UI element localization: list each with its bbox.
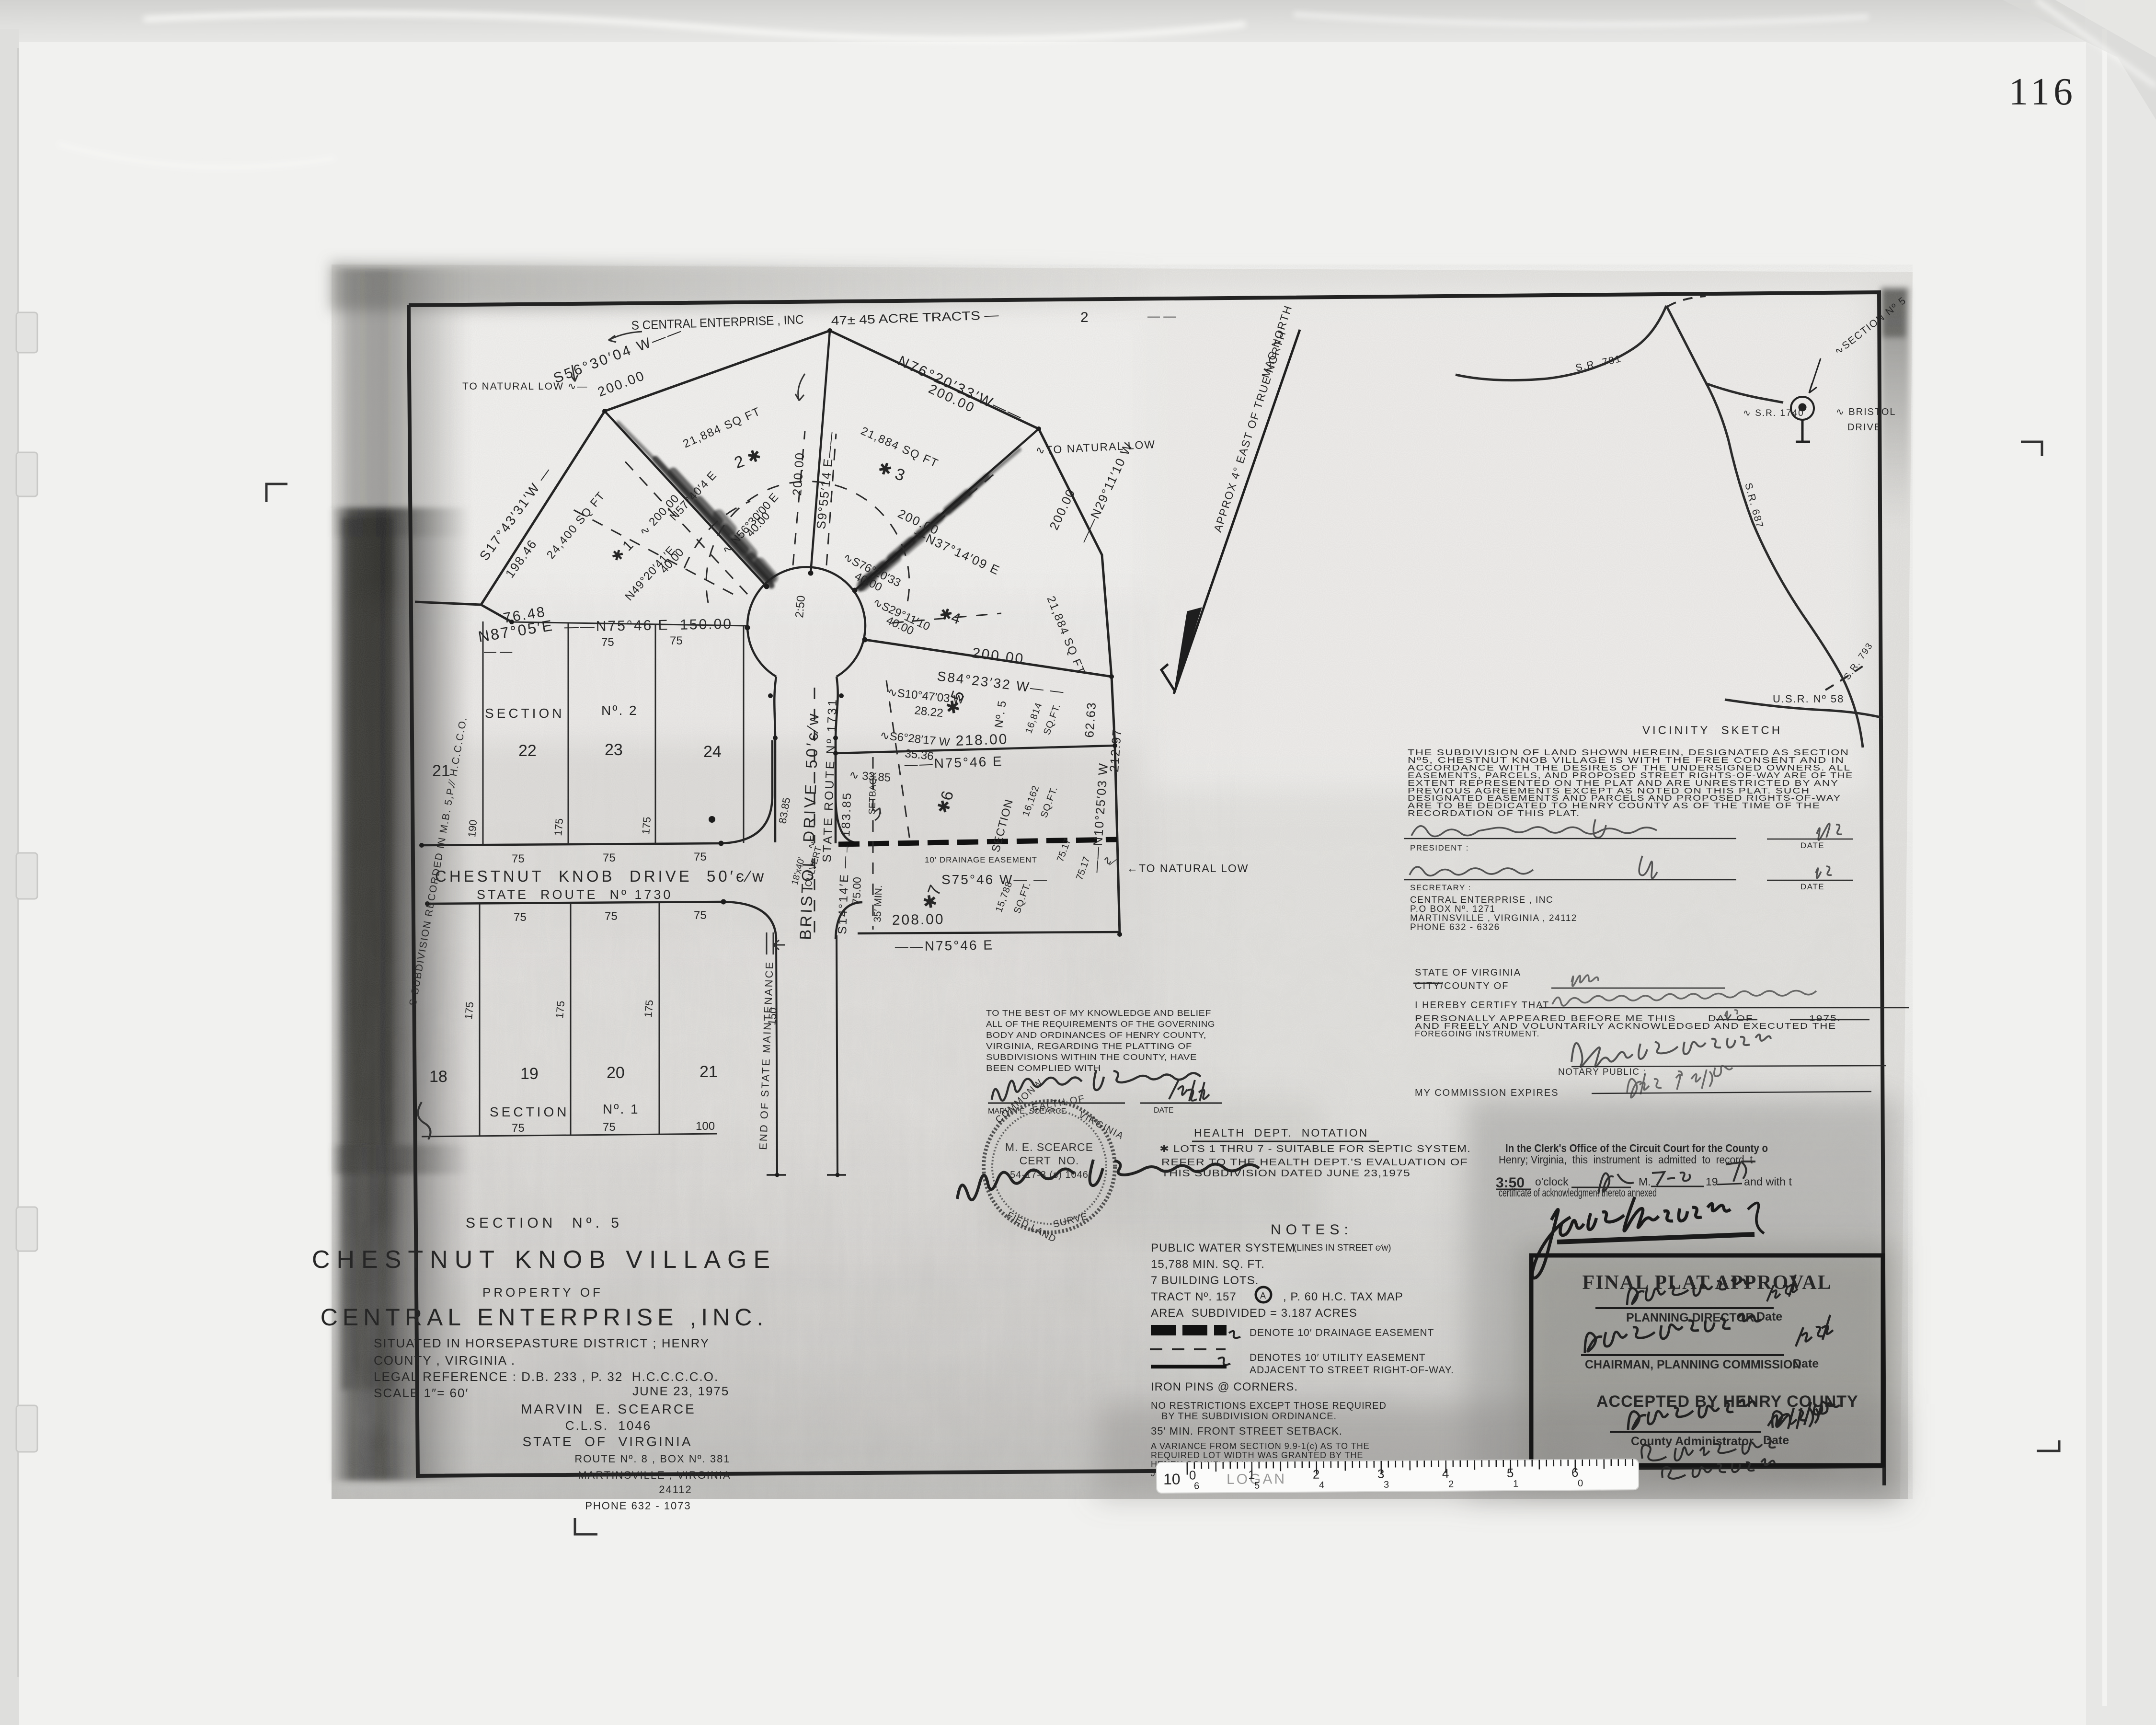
- svg-text:175: 175: [640, 816, 653, 835]
- svg-text:4: 4: [1442, 1466, 1449, 1481]
- svg-text:NOTES:: NOTES:: [1271, 1222, 1353, 1238]
- svg-text:Nº. 1: Nº. 1: [603, 1102, 640, 1116]
- svg-text:∿ S.R. 1740: ∿ S.R. 1740: [1743, 408, 1804, 418]
- svg-text:SETBACK: SETBACK: [867, 771, 879, 815]
- svg-text:19: 19: [1706, 1175, 1718, 1188]
- svg-text:— ―: — ―: [484, 644, 512, 658]
- svg-text:21: 21: [700, 1063, 718, 1081]
- svg-text:DATE: DATE: [1154, 1106, 1173, 1115]
- svg-text:CENTRAL ENTERPRISE ,INC.: CENTRAL ENTERPRISE ,INC.: [321, 1304, 768, 1331]
- svg-text:7 BUILDING LOTS.: 7 BUILDING LOTS.: [1151, 1274, 1259, 1287]
- svg-text:— —: — —: [1147, 309, 1176, 323]
- svg-text:190: 190: [466, 819, 479, 838]
- svg-text:175: 175: [553, 1000, 567, 1019]
- svg-text:10′ DRAINAGE EASEMENT: 10′ DRAINAGE EASEMENT: [925, 855, 1037, 864]
- svg-text:175: 175: [462, 1001, 476, 1020]
- svg-text:DRIVE: DRIVE: [1847, 422, 1881, 433]
- svg-text:REFER TO THE HEALTH DEPT.'S EV: REFER TO THE HEALTH DEPT.'S EVALUATION O…: [1161, 1157, 1468, 1168]
- svg-text:3: 3: [1377, 1467, 1385, 1481]
- svg-text:←TO NATURAL LOW: ←TO NATURAL LOW: [1127, 862, 1249, 874]
- svg-text:CENTRAL ENTERPRISE , INC: CENTRAL ENTERPRISE , INC: [1410, 895, 1553, 905]
- svg-text:75.00: 75.00: [850, 877, 863, 905]
- svg-text:ADJACENT TO STREET RIGHT-OF-WA: ADJACENT TO STREET RIGHT-OF-WAY.: [1250, 1365, 1454, 1376]
- svg-text:75: 75: [603, 1121, 616, 1134]
- svg-text:C.L.S. 1046: C.L.S. 1046: [565, 1418, 652, 1433]
- svg-text:2:50: 2:50: [793, 595, 808, 619]
- svg-text:THIS SUBDIVISION DATED JUNE 23: THIS SUBDIVISION DATED JUNE 23,1975: [1161, 1168, 1411, 1179]
- svg-text:175: 175: [552, 818, 565, 837]
- svg-text:35′ MIN. FRONT STREET SETBACK.: 35′ MIN. FRONT STREET SETBACK.: [1151, 1425, 1342, 1437]
- svg-text:DATE: DATE: [1800, 841, 1824, 850]
- svg-text:75: 75: [514, 911, 527, 924]
- svg-text:18: 18: [429, 1068, 447, 1086]
- svg-text:and with t: and with t: [1744, 1175, 1792, 1188]
- svg-text:STATE OF VIRGINIA: STATE OF VIRGINIA: [1415, 967, 1521, 978]
- svg-text:6: 6: [1194, 1481, 1199, 1491]
- svg-text:∿ BRISTOL: ∿ BRISTOL: [1836, 407, 1896, 417]
- svg-text:SITUATED IN HORSEPASTURE DISTR: SITUATED IN HORSEPASTURE DISTRICT ; HENR…: [374, 1336, 710, 1350]
- svg-text:0: 0: [1189, 1468, 1196, 1482]
- svg-text:116: 116: [2009, 71, 2076, 113]
- svg-text:CHESTNUT KNOB VILLAGE: CHESTNUT KNOB VILLAGE: [312, 1246, 777, 1274]
- svg-text:1: 1: [1513, 1479, 1518, 1489]
- svg-text:——N75°46 E 150.00: ——N75°46 E 150.00: [564, 616, 733, 635]
- svg-text:75: 75: [512, 1122, 525, 1135]
- svg-text:M. E. SCEARCE: M. E. SCEARCE: [1005, 1141, 1093, 1153]
- svg-text:Nº. 2: Nº. 2: [601, 703, 638, 718]
- svg-text:0: 0: [1578, 1478, 1583, 1489]
- svg-text:SECRETARY :: SECRETARY :: [1410, 883, 1471, 892]
- svg-text:BEEN COMPLIED WITH: BEEN COMPLIED WITH: [986, 1063, 1101, 1073]
- svg-text:Henry; Virginia, this instru: Henry; Virginia, this instrument is admi…: [1499, 1153, 1753, 1166]
- svg-text:ROUTE Nº. 8 , BOX Nº. 381: ROUTE Nº. 8 , BOX Nº. 381: [574, 1453, 730, 1465]
- svg-text:STATE OF VIRGINIA: STATE OF VIRGINIA: [523, 1434, 693, 1449]
- svg-text:100: 100: [696, 1120, 715, 1133]
- svg-text:SECTION: SECTION: [490, 1104, 569, 1119]
- svg-text:75: 75: [601, 636, 614, 649]
- svg-text:NO RESTRICTIONS EXCEPT THOSE R: NO RESTRICTIONS EXCEPT THOSE REQUIRED: [1151, 1401, 1387, 1411]
- svg-text:SECTION: SECTION: [485, 706, 564, 721]
- svg-text:3: 3: [1384, 1480, 1389, 1490]
- svg-text:PUBLIC WATER SYSTEM: PUBLIC WATER SYSTEM: [1151, 1242, 1296, 1254]
- svg-text:∿=: ∿=: [806, 835, 817, 849]
- svg-text:ALL OF THE REQUIREMENTS OF THE: ALL OF THE REQUIREMENTS OF THE GOVERNING: [986, 1019, 1215, 1029]
- svg-text:A: A: [1260, 1291, 1266, 1300]
- svg-text:BODY AND ORDINANCES OF HENRY C: BODY AND ORDINANCES OF HENRY COUNTY,: [986, 1030, 1206, 1040]
- svg-text:20: 20: [607, 1064, 625, 1082]
- svg-text:✱ LOTS 1 THRU 7 - SUITABLE FOR: ✱ LOTS 1 THRU 7 - SUITABLE FOR SEPTIC SY…: [1159, 1144, 1471, 1154]
- svg-text:P.O BOX Nº. 1271: P.O BOX Nº. 1271: [1410, 904, 1495, 914]
- svg-text:HEALTH DEPT. NOTATION: HEALTH DEPT. NOTATION: [1194, 1127, 1368, 1139]
- svg-text:208.00: 208.00: [892, 911, 945, 928]
- svg-text:CHAIRMAN, PLANNING COMMISSION: CHAIRMAN, PLANNING COMMISSION: [1585, 1358, 1801, 1371]
- svg-text:PHONE 632 - 6326: PHONE 632 - 6326: [1410, 922, 1500, 932]
- svg-text:JUNE 23, 1975: JUNE 23, 1975: [632, 1384, 729, 1398]
- svg-text:LOGAN: LOGAN: [1227, 1471, 1286, 1487]
- svg-text:DATE: DATE: [1800, 882, 1824, 891]
- svg-text:5: 5: [1507, 1466, 1514, 1480]
- svg-text:SUBDIVISIONS WITHIN THE COUNTY: SUBDIVISIONS WITHIN THE COUNTY, HAVE: [986, 1052, 1197, 1062]
- svg-text:SECTION Nº. 5: SECTION Nº. 5: [466, 1215, 623, 1231]
- svg-text:62.63: 62.63: [1082, 701, 1099, 738]
- svg-text:75: 75: [603, 851, 616, 864]
- svg-text:, P. 60 H.C. TAX MAP: , P. 60 H.C. TAX MAP: [1283, 1290, 1403, 1303]
- svg-text:75: 75: [694, 909, 707, 922]
- svg-text:CHESTNUT KNOB DRIVE 50′є⁄w: CHESTNUT KNOB DRIVE 50′є⁄w: [435, 867, 767, 885]
- svg-text:6: 6: [1571, 1465, 1579, 1480]
- svg-text:In the Clerk's Office of the C: In the Clerk's Office of the Circuit Cou…: [1505, 1142, 1768, 1154]
- svg-text:200.00: 200.00: [790, 451, 807, 496]
- svg-text:3:50: 3:50: [1496, 1175, 1525, 1191]
- svg-text:CERT NO.: CERT NO.: [1020, 1154, 1079, 1167]
- svg-text:BY THE SUBDIVISION ORDINANCE.: BY THE SUBDIVISION ORDINANCE.: [1161, 1411, 1337, 1422]
- svg-text:MARVIN E. SCEARCE: MARVIN E. SCEARCE: [521, 1402, 696, 1416]
- svg-text:U.S.R. Nº 58: U.S.R. Nº 58: [1773, 693, 1844, 705]
- svg-text:24: 24: [703, 743, 722, 761]
- svg-text:10: 10: [1163, 1471, 1181, 1488]
- svg-text:4: 4: [1319, 1480, 1324, 1491]
- svg-text:NOTARY PUBLIC :: NOTARY PUBLIC :: [1558, 1067, 1646, 1077]
- svg-text:PHONE 632 - 1073: PHONE 632 - 1073: [585, 1500, 691, 1512]
- svg-text:AREA SUBDIVIDED = 3.187 ACRES: AREA SUBDIVIDED = 3.187 ACRES: [1151, 1307, 1357, 1320]
- svg-text:COUNTY , VIRGINIA .: COUNTY , VIRGINIA .: [374, 1353, 516, 1368]
- svg-text:TRACT Nº. 157: TRACT Nº. 157: [1151, 1290, 1237, 1303]
- svg-text:2: 2: [1080, 310, 1089, 325]
- svg-text:15,788 MIN. SQ. FT.: 15,788 MIN. SQ. FT.: [1151, 1258, 1265, 1271]
- svg-text:PROPERTY OF: PROPERTY OF: [482, 1285, 603, 1299]
- svg-text:PRESIDENT :: PRESIDENT :: [1410, 843, 1469, 852]
- svg-text:Date: Date: [1793, 1357, 1819, 1370]
- svg-text:75: 75: [512, 852, 525, 865]
- svg-text:35′ MIN.: 35′ MIN.: [872, 885, 884, 922]
- svg-text:RECORDATION OF THIS PLAT.: RECORDATION OF THIS PLAT.: [1408, 808, 1580, 818]
- svg-text:22: 22: [518, 742, 537, 760]
- svg-text:MARTINSVILLE , VIRGINIA , 2411: MARTINSVILLE , VIRGINIA , 24112: [1410, 913, 1577, 923]
- svg-text:218.00: 218.00: [955, 731, 1009, 749]
- svg-text:SCALE 1″= 60′: SCALE 1″= 60′: [374, 1386, 469, 1400]
- svg-text:PLANNING DIRECTOR: PLANNING DIRECTOR: [1626, 1311, 1755, 1324]
- svg-text:I HEREBY CERTIFY THAT: I HEREBY CERTIFY THAT: [1415, 1000, 1549, 1011]
- svg-text:75: 75: [694, 851, 707, 863]
- svg-text:175: 175: [642, 1000, 655, 1018]
- svg-text:75: 75: [670, 634, 683, 647]
- svg-text:VICINITY SKETCH: VICINITY SKETCH: [1642, 724, 1782, 737]
- svg-text:DENOTES 10′ UTILITY EASEMENT: DENOTES 10′ UTILITY EASEMENT: [1250, 1352, 1426, 1363]
- svg-text:——N75°46 E: ——N75°46 E: [895, 937, 994, 954]
- svg-text:2: 2: [1313, 1467, 1320, 1482]
- svg-text:MARTINSVILLE , VIRGINIA: MARTINSVILLE , VIRGINIA: [578, 1469, 731, 1481]
- svg-text:IRON PINS @ CORNERS.: IRON PINS @ CORNERS.: [1151, 1380, 1298, 1393]
- svg-text:MY COMMISSION EXPIRES: MY COMMISSION EXPIRES: [1415, 1088, 1559, 1098]
- svg-text:Date: Date: [1763, 1434, 1789, 1447]
- svg-text:FINAL PLAT APPROVAL: FINAL PLAT APPROVAL: [1582, 1272, 1832, 1294]
- svg-text:LEGAL REFERENCE : D.B. 233 , P: LEGAL REFERENCE : D.B. 233 , P. 32 H.C.C…: [374, 1369, 719, 1384]
- svg-text:2: 2: [1448, 1479, 1454, 1490]
- svg-text:75: 75: [605, 910, 618, 923]
- svg-text:A VARIANCE FROM SECTION 9.9-1(: A VARIANCE FROM SECTION 9.9-1(c) AS TO T…: [1151, 1441, 1370, 1451]
- svg-text:FOREGOING INSTRUMENT.: FOREGOING INSTRUMENT.: [1415, 1029, 1540, 1038]
- svg-text:(LINES IN STREET є⁄w): (LINES IN STREET є⁄w): [1294, 1243, 1391, 1253]
- svg-text:24112: 24112: [659, 1483, 692, 1495]
- svg-text:STATE ROUTE Nº 1730: STATE ROUTE Nº 1730: [477, 887, 673, 902]
- svg-text:VIRGINIA, REGARDING THE PLATTI: VIRGINIA, REGARDING THE PLATTING OF: [986, 1041, 1192, 1051]
- svg-text:CITY/COUNTY OF: CITY/COUNTY OF: [1415, 981, 1509, 991]
- svg-text:TO THE BEST OF MY KNOWLEDGE AN: TO THE BEST OF MY KNOWLEDGE AND BELIEF: [986, 1008, 1211, 1018]
- svg-text:TO NATURAL LOW ∿—: TO NATURAL LOW ∿—: [462, 381, 588, 392]
- svg-text:REQUIRED LOT WIDTH WAS GRANTED: REQUIRED LOT WIDTH WAS GRANTED BY THE: [1151, 1450, 1363, 1460]
- svg-text:DENOTE 10′ DRAINAGE EASEMENT: DENOTE 10′ DRAINAGE EASEMENT: [1250, 1327, 1434, 1338]
- svg-text:19: 19: [520, 1065, 539, 1083]
- svg-text:23: 23: [605, 741, 623, 759]
